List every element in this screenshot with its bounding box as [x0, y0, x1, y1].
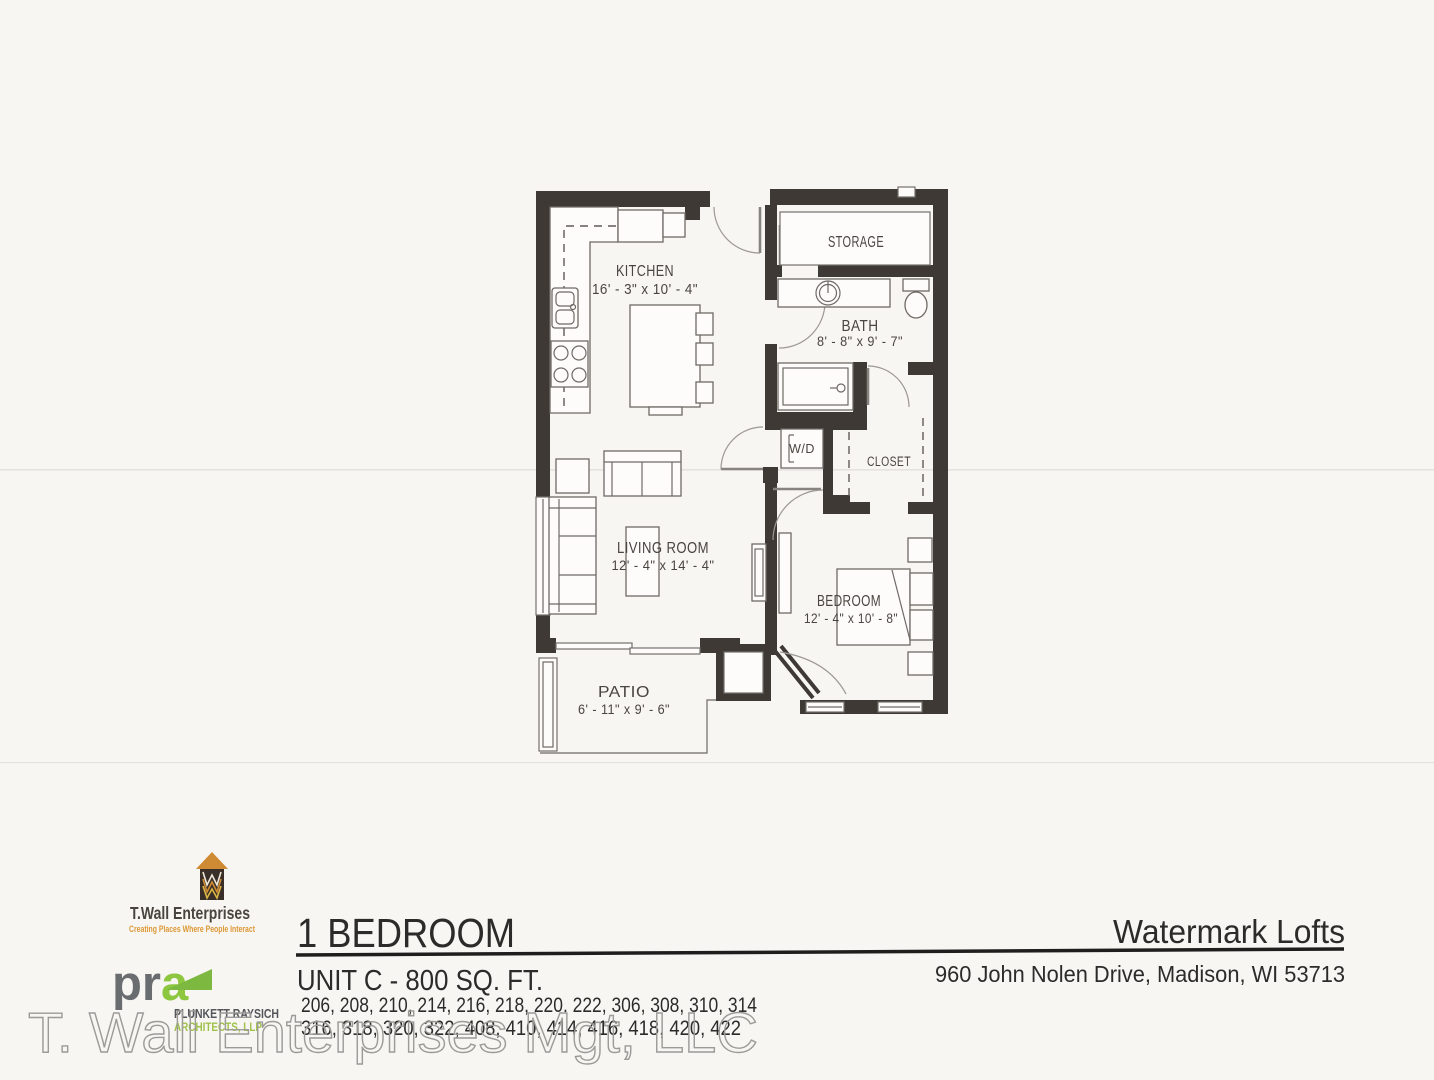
nightstand — [908, 652, 933, 675]
hall-door-arc — [721, 427, 763, 469]
property-address: 960 John Nolen Drive, Madison, WI 53713 — [935, 961, 1345, 987]
pillow — [910, 573, 933, 605]
property-name: Watermark Lofts — [1113, 913, 1345, 950]
living-room-label: LIVING ROOM — [617, 540, 709, 557]
bedroom-label: BEDROOM — [817, 593, 881, 610]
twall-name: T.Wall Enterprises — [130, 903, 250, 923]
refrigerator — [618, 210, 663, 242]
island-stool — [696, 382, 713, 403]
kitchen-cabinet — [663, 213, 685, 237]
living-room-furniture — [549, 451, 766, 614]
bath-label: BATH — [842, 318, 879, 335]
patio-elements — [539, 644, 771, 753]
storage-label: STORAGE — [828, 234, 884, 251]
unit-size: UNIT C - 800 SQ. FT. — [297, 965, 543, 997]
island-stool — [649, 407, 682, 415]
tv-console — [752, 544, 766, 601]
island-stool — [696, 313, 713, 335]
kitchen-dims: 16' - 3" x 10' - 4" — [592, 282, 698, 298]
toilet-bowl — [905, 292, 927, 318]
watermark-text: T. Wall Enterprises Mgt, LLC — [28, 1001, 758, 1065]
twall-tagline: Creating Places Where People Interact — [129, 924, 255, 934]
bath-dims: 8' - 8" x 9' - 7" — [817, 334, 903, 349]
patio-rail-window — [539, 658, 557, 751]
living-room-dims: 12' - 4" x 14' - 4" — [612, 557, 715, 573]
nightstand — [908, 538, 932, 562]
scan-artifact-line — [0, 469, 1434, 471]
dresser — [779, 533, 791, 613]
island-stool — [696, 343, 713, 365]
pillow — [910, 610, 933, 640]
closet-label: CLOSET — [867, 454, 911, 469]
patio-storage-inner — [724, 652, 763, 693]
bedroom-dims: 12' - 4" x 10' - 8" — [804, 610, 898, 626]
toilet-tank — [903, 279, 929, 291]
wd-label: W/D — [789, 442, 815, 456]
floor-plan-sheet: KITCHEN 16' - 3" x 10' - 4" STORAGE BATH… — [0, 0, 1434, 1080]
floor-plan-canvas: KITCHEN 16' - 3" x 10' - 4" STORAGE BATH… — [0, 0, 1434, 1080]
sofa — [549, 497, 596, 614]
kitchen-island — [630, 305, 700, 407]
unit-type-title: 1 BEDROOM — [297, 910, 515, 956]
patio-label: PATIO — [598, 684, 650, 701]
side-table — [556, 459, 589, 493]
kitchen-fixtures — [550, 207, 713, 415]
patio-dims: 6' - 11" x 9' - 6" — [578, 701, 670, 717]
entry-door-arc — [714, 207, 760, 253]
closet-door-arc — [868, 366, 909, 407]
kitchen-label: KITCHEN — [616, 263, 674, 280]
scan-artifact-line — [0, 762, 1434, 763]
twall-tower-roof-icon — [196, 852, 228, 869]
twall-logo: T.Wall Enterprises Creating Places Where… — [129, 852, 255, 934]
shower — [778, 363, 853, 410]
